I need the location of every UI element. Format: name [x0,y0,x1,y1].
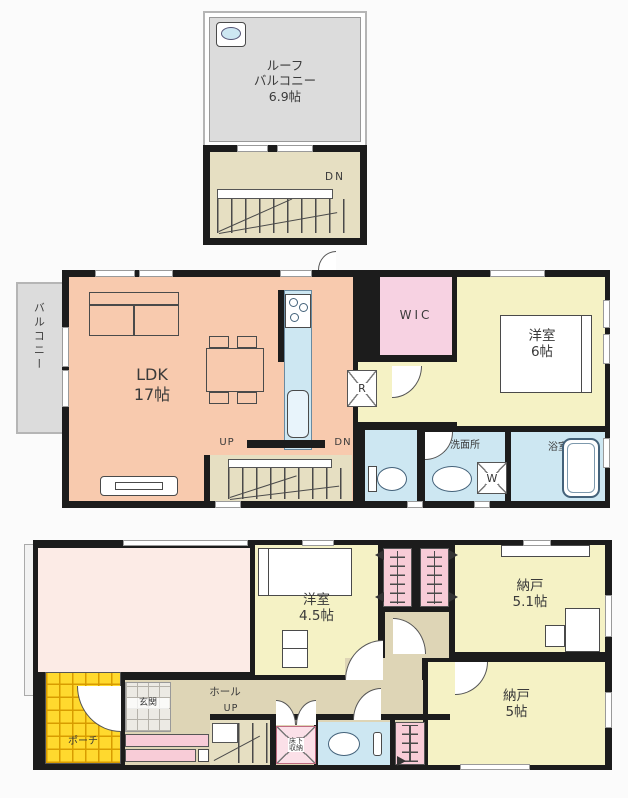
underfloor-storage-label: 床下 収納 [288,738,304,752]
washer-label: W [486,473,499,484]
window [123,540,248,546]
shoe-cabinet-icon [125,734,209,747]
f2-entry-door-arc [318,251,336,270]
desk-icon [282,630,308,668]
window [603,438,610,468]
shoe-box-icon [198,749,209,762]
f1-entrance-tile [125,682,171,732]
window [62,370,69,407]
window [407,501,423,508]
f2-wic [380,277,452,355]
f1-open-room [38,548,250,672]
bed-icon [500,315,592,393]
underfloor-storage-icon: 床下 収納 [276,726,316,764]
shoe-cabinet-icon [125,749,196,762]
f2-balcony-label: バルコニー [32,302,45,372]
roof-stair-block: DN [203,145,367,245]
washbasin-icon [432,466,472,492]
toilet-bowl-icon [377,467,407,491]
toilet-tank-icon [373,732,382,756]
window [605,595,612,637]
f2-outline: R LDK 17帖 UP DN WIC 洋室 6帖 洗面所 [62,270,610,508]
dining-chair-icon [237,392,257,404]
stair-treads [217,199,355,233]
desk-icon [565,608,600,652]
closet-icon [420,548,449,607]
f1-stairs [210,720,270,765]
window [302,540,334,546]
window [95,270,135,277]
roof-sink-icon [216,22,246,47]
f1-outline: 洋室 4.5帖 納戸 5.1帖 納戸 5帖 玄関 ポーチ ホール UP [33,540,612,770]
dining-table-icon [206,348,264,392]
f2-stairs-topwall [247,440,325,448]
stair-landing [217,189,333,199]
dining-chair-icon [209,392,229,404]
sofa-icon [89,292,179,336]
dining-chair-icon [209,336,229,348]
closet-door-mark [397,756,406,766]
closet-door-mark [375,592,384,602]
floor-plan: ルーフ バルコニー 6.9帖 DN バルコニー R [0,0,628,798]
f2-stairs [210,455,352,501]
window [139,270,173,277]
window [490,270,545,277]
kitchen-sink-icon [287,390,309,438]
window [460,764,530,770]
window [523,540,551,546]
window [474,501,490,508]
window [62,327,69,367]
window [603,334,610,364]
toilet-tank-icon [368,466,377,492]
fridge-label: R [357,383,367,394]
dining-chair-icon [237,336,257,348]
closet-door-mark [449,592,458,602]
bathtub-icon [562,438,600,498]
roof-door-window [277,145,313,152]
tv-board-icon [100,476,178,496]
fridge-icon: R [347,370,377,407]
window [603,300,610,328]
roof-door-window [237,145,268,152]
window [280,270,312,277]
closet-icon [383,548,412,607]
window [215,501,241,508]
toilet-bowl-icon [328,732,360,756]
shelf-icon [501,545,590,557]
bed-icon [258,548,352,596]
window [605,692,612,728]
desk-icon [545,625,565,647]
stove-icon [285,294,311,328]
closet-door-mark [449,550,458,560]
washer-icon: W [477,462,507,494]
f2-balcony: バルコニー [16,282,66,434]
closet-door-mark [375,550,384,560]
